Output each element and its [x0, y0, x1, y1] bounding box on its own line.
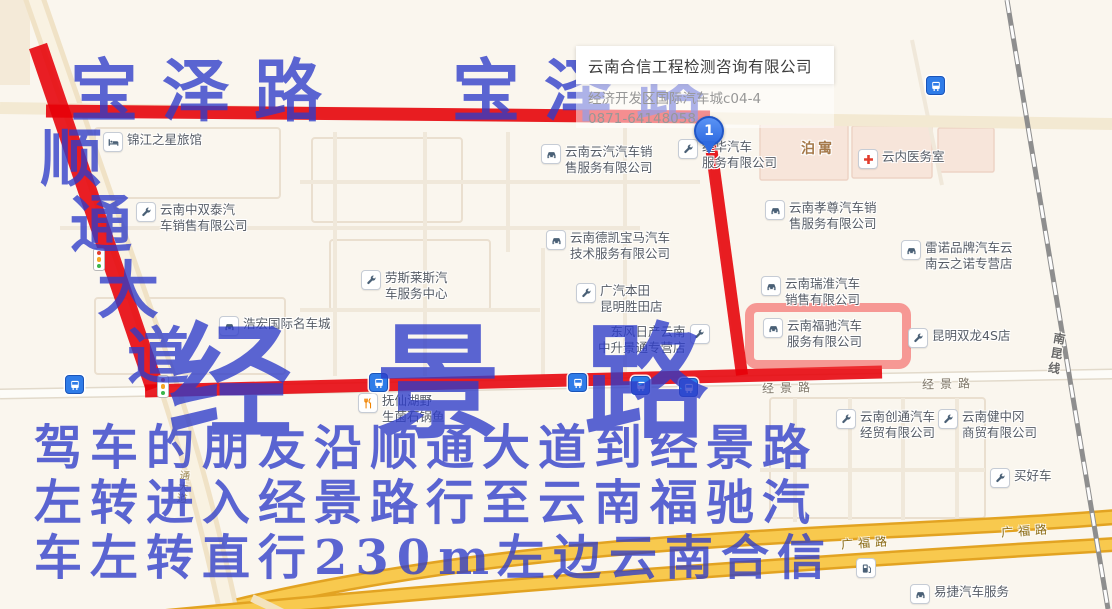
car-icon — [761, 276, 781, 296]
poi-zhongshuangtai[interactable]: 云南中双泰汽 车销售有限公司 — [136, 202, 248, 234]
poi-label: 云南瑞淮汽车 销售有限公司 — [785, 276, 860, 308]
poi-dongfeng-nissan[interactable]: 东风日产云南 中升景通专营店 — [598, 324, 710, 356]
poi-ruihuai-auto[interactable]: 云南瑞淮汽车 销售有限公司 — [761, 276, 860, 308]
poi-label: 云南福驰汽车 服务有限公司 — [787, 318, 862, 350]
poi-label: 云南中双泰汽 车销售有限公司 — [160, 202, 248, 234]
traffic-light-icon — [93, 248, 105, 271]
poi-label: 云内医务室 — [882, 149, 945, 165]
wrench-icon — [690, 324, 710, 344]
gas-icon — [856, 558, 876, 578]
popup-title: 云南合信工程检测咨询有限公司 — [576, 46, 834, 84]
poi-label: 易捷汽车服务 — [934, 584, 1009, 600]
poi-fuxianhu-restaurant[interactable]: 抚仙湖野 生菌石锅鱼 — [358, 393, 445, 425]
car-icon — [541, 144, 561, 164]
poi-label: 昆明双龙4S店 — [932, 328, 1010, 344]
car-icon — [910, 584, 930, 604]
pin-number: 1 — [704, 123, 714, 139]
bus-stop-icon[interactable] — [631, 376, 650, 395]
poi-maihaoche[interactable]: 买好车 — [990, 468, 1052, 488]
poi-label: 泊寓 — [801, 141, 835, 159]
wrench-icon — [678, 139, 698, 159]
poi-haohong[interactable]: 浩宏国际名车城 — [219, 316, 331, 336]
poi-guangqi-honda[interactable]: 广汽本田 昆明胜田店 — [576, 283, 663, 315]
poi-jinjiang-hotel[interactable]: 锦江之星旅馆 — [103, 132, 202, 152]
poi-label: 云南德凯宝马汽车 技术服务有限公司 — [570, 230, 670, 262]
poi-label: 抚仙湖野 生菌石锅鱼 — [382, 393, 445, 425]
poi-label: 东风日产云南 中升景通专营店 — [598, 324, 686, 356]
poi-label: 广汽本田 昆明胜田店 — [600, 283, 663, 315]
poi-shuanglong-4s[interactable]: 昆明双龙4S店 — [908, 328, 1010, 348]
wrench-icon — [990, 468, 1010, 488]
fork-icon — [358, 393, 378, 413]
poi-xiaozun-auto[interactable]: 云南孝尊汽车销 售服务有限公司 — [765, 200, 877, 232]
bus-stop-icon[interactable] — [369, 373, 388, 392]
poi-yunnei-clinic[interactable]: 云内医务室 — [858, 149, 945, 169]
car-icon — [765, 200, 785, 220]
route-overlay — [0, 0, 1112, 609]
poi-yijie-auto[interactable]: 易捷汽车服务 — [910, 584, 1009, 604]
poi-label: 雷诺品牌汽车云 南云之诺专营店 — [925, 240, 1013, 272]
wrench-icon — [836, 409, 856, 429]
poi-jinghua-auto[interactable]: 经华汽车 服务有限公司 — [678, 139, 777, 171]
poi-label: 云南健中冈 商贸有限公司 — [962, 409, 1037, 441]
bus-stop-icon[interactable] — [65, 375, 84, 394]
poi-label: 浩宏国际名车城 — [243, 316, 331, 332]
poi-label: 云南创通汽车 经贸有限公司 — [860, 409, 935, 441]
bus-stop-icon[interactable] — [679, 378, 698, 397]
poi-label: 云南云汽汽车销 售服务有限公司 — [565, 144, 653, 176]
wrench-icon — [938, 409, 958, 429]
popup-address: 经济开发区国际汽车城c04-4 — [576, 84, 834, 108]
traffic-light-icon — [157, 375, 169, 398]
car-icon — [763, 318, 783, 338]
wrench-icon — [576, 283, 596, 303]
wrench-icon — [136, 202, 156, 222]
bus-stop-icon[interactable] — [568, 373, 587, 392]
poi-dekai-bmw[interactable]: 云南德凯宝马汽车 技术服务有限公司 — [546, 230, 670, 262]
poi-label: 买好车 — [1014, 468, 1052, 484]
poi-jianzhonggang[interactable]: 云南健中冈 商贸有限公司 — [938, 409, 1037, 441]
bus-stop-icon[interactable] — [926, 76, 945, 95]
poi-label: 云南孝尊汽车销 售服务有限公司 — [789, 200, 877, 232]
poi-rolls-royce[interactable]: 劳斯莱斯汽 车服务中心 — [361, 270, 448, 302]
map-canvas[interactable]: 经景路经景路广福路广福路南昆线通大道 锦江之星旅馆云南中双泰汽 车销售有限公司云… — [0, 0, 1112, 609]
wrench-icon — [361, 270, 381, 290]
poi-boyu-area[interactable]: 泊寓 — [801, 141, 835, 159]
result-pin-marker[interactable]: 1 — [694, 116, 724, 146]
poi-gas-station[interactable] — [856, 558, 876, 578]
poi-fuchi-auto[interactable]: 云南福驰汽车 服务有限公司 — [763, 318, 862, 350]
poi-renault-store[interactable]: 雷诺品牌汽车云 南云之诺专营店 — [901, 240, 1013, 272]
poi-yunqi-auto[interactable]: 云南云汽汽车销 售服务有限公司 — [541, 144, 653, 176]
car-icon — [901, 240, 921, 260]
poi-label: 劳斯莱斯汽 车服务中心 — [385, 270, 448, 302]
wrench-icon — [908, 328, 928, 348]
poi-chuangtong-auto[interactable]: 云南创通汽车 经贸有限公司 — [836, 409, 935, 441]
hotel-icon — [103, 132, 123, 152]
poi-label: 锦江之星旅馆 — [127, 132, 202, 148]
cross-icon — [858, 149, 878, 169]
car-icon — [546, 230, 566, 250]
car-icon — [219, 316, 239, 336]
